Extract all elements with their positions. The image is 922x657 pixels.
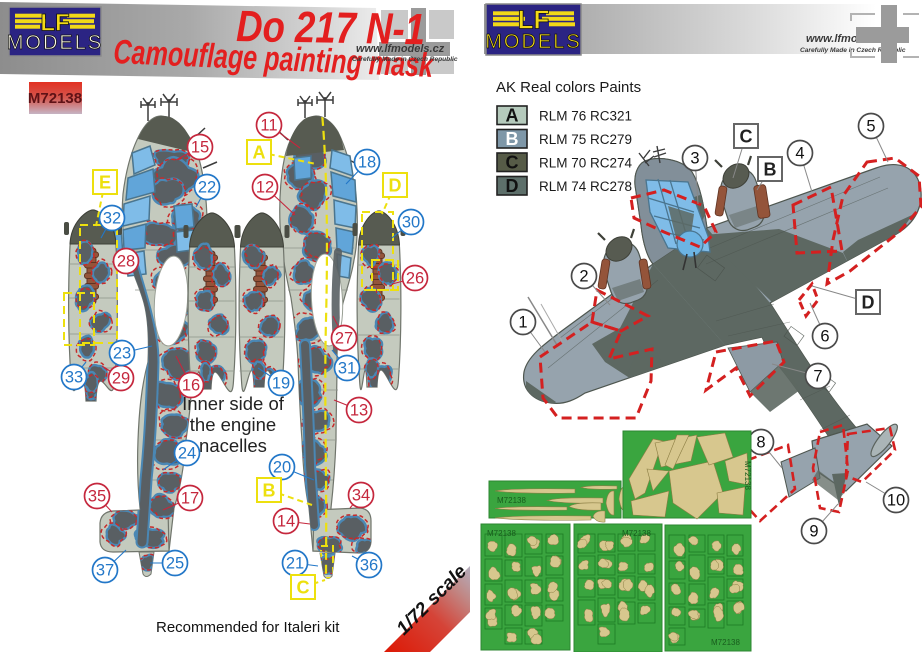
svg-text:1: 1 — [518, 314, 527, 332]
svg-text:MODELS: MODELS — [485, 31, 581, 53]
svg-text:M72138: M72138 — [711, 638, 740, 647]
svg-text:D: D — [506, 176, 519, 196]
svg-text:RLM 76 RC321: RLM 76 RC321 — [539, 109, 632, 124]
svg-text:LF: LF — [518, 4, 550, 34]
svg-text:29: 29 — [112, 370, 130, 388]
svg-text:25: 25 — [166, 555, 184, 573]
svg-text:14: 14 — [277, 513, 295, 531]
svg-text:A: A — [506, 106, 519, 126]
svg-text:D: D — [389, 176, 402, 196]
svg-text:3: 3 — [690, 150, 699, 168]
svg-text:MODELS: MODELS — [7, 32, 103, 54]
svg-text:RLM 70 RC274: RLM 70 RC274 — [539, 156, 633, 171]
svg-text:26: 26 — [406, 270, 424, 288]
svg-text:2: 2 — [579, 268, 588, 286]
svg-text:B: B — [506, 129, 519, 149]
svg-text:36: 36 — [360, 557, 378, 575]
svg-text:7: 7 — [813, 368, 822, 386]
svg-text:27: 27 — [335, 330, 353, 348]
svg-text:RLM 75 RC279: RLM 75 RC279 — [539, 132, 632, 147]
svg-text:35: 35 — [88, 488, 106, 506]
svg-text:B: B — [263, 481, 276, 501]
svg-text:M72138: M72138 — [487, 529, 516, 538]
svg-text:nacelles: nacelles — [199, 435, 267, 456]
svg-text:9: 9 — [809, 523, 818, 541]
svg-text:5: 5 — [866, 118, 875, 136]
svg-text:C: C — [506, 153, 519, 173]
svg-text:15: 15 — [191, 139, 209, 157]
svg-text:20: 20 — [273, 459, 291, 477]
svg-text:M72138: M72138 — [28, 90, 82, 107]
svg-text:6: 6 — [820, 328, 829, 346]
svg-text:A: A — [253, 143, 266, 163]
svg-text:34: 34 — [352, 487, 370, 505]
svg-text:28: 28 — [117, 253, 135, 271]
svg-text:19: 19 — [272, 375, 290, 393]
svg-text:10: 10 — [887, 492, 905, 510]
svg-text:RLM 74 RC278: RLM 74 RC278 — [539, 179, 632, 194]
svg-text:13: 13 — [350, 402, 368, 420]
svg-text:33: 33 — [65, 369, 83, 387]
svg-text:www.lfmodels.cz: www.lfmodels.cz — [356, 43, 445, 55]
svg-text:31: 31 — [338, 360, 356, 378]
svg-text:C: C — [297, 578, 310, 598]
svg-text:18: 18 — [358, 154, 376, 172]
svg-text:D: D — [862, 293, 875, 313]
svg-text:24: 24 — [178, 445, 196, 463]
svg-text:23: 23 — [113, 345, 131, 363]
svg-text:17: 17 — [181, 490, 199, 508]
svg-text:Carefully Made in Czech Republ: Carefully Made in Czech Republic — [352, 56, 458, 63]
svg-text:E: E — [99, 173, 111, 193]
svg-text:30: 30 — [402, 214, 420, 232]
svg-text:C: C — [740, 127, 753, 147]
svg-text:8: 8 — [756, 434, 765, 452]
svg-text:4: 4 — [795, 145, 804, 163]
svg-text:M72138: M72138 — [497, 496, 526, 505]
svg-text:M72138: M72138 — [743, 461, 752, 490]
svg-text:M72138: M72138 — [622, 529, 651, 538]
svg-text:21: 21 — [286, 555, 304, 573]
svg-text:22: 22 — [198, 179, 216, 197]
svg-text:11: 11 — [260, 117, 277, 135]
svg-text:37: 37 — [96, 562, 114, 580]
svg-text:12: 12 — [256, 179, 274, 197]
svg-text:AK Real colors Paints: AK Real colors Paints — [496, 79, 641, 96]
svg-text:32: 32 — [103, 210, 121, 228]
svg-text:Recommended for Italeri kit: Recommended for Italeri kit — [156, 619, 340, 636]
svg-text:16: 16 — [182, 377, 200, 395]
svg-text:B: B — [764, 160, 777, 180]
svg-text:the engine: the engine — [190, 414, 276, 435]
